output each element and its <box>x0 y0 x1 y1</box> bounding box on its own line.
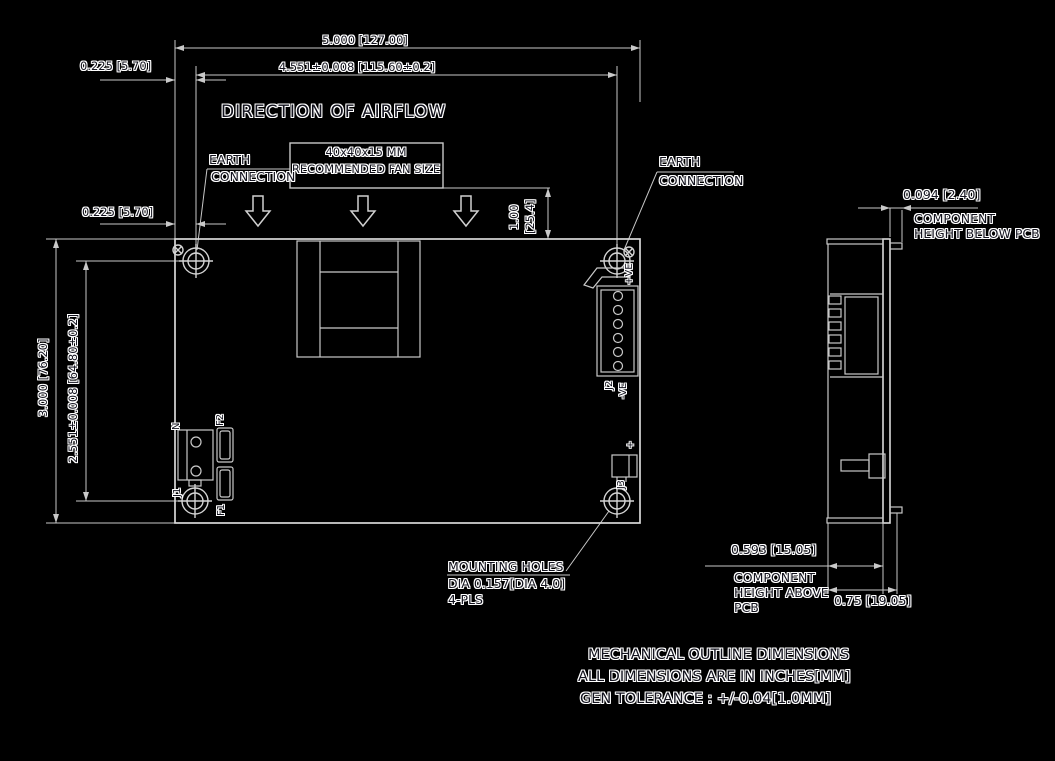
airflow-arrow-icon <box>351 196 375 226</box>
refdes-neg-ve: -VE <box>618 383 630 399</box>
transformer-side-outline <box>845 297 878 374</box>
side-view <box>827 239 902 523</box>
dim-overall-width: 5.000 [127.00] <box>322 34 408 47</box>
refdes-pos-ve: +VE <box>624 263 636 285</box>
dim-fan-height-in: 1.00 <box>508 204 521 230</box>
airflow-title: DIRECTION OF AIRFLOW <box>221 103 446 123</box>
pcb-side-outline <box>883 239 890 523</box>
refdes-j3: J3 <box>617 480 628 489</box>
drawing-linework <box>0 0 1055 761</box>
dim-overall-thickness: 0.75 [19.05] <box>834 594 911 608</box>
dim-height-above-pcb: 0.593 [15.05] <box>731 543 816 557</box>
height-above-label-line1: COMPONENT <box>734 571 815 585</box>
component-j3-outline <box>612 455 637 482</box>
mounting-hole-icons <box>173 244 634 518</box>
height-above-label-line3: PCB <box>734 601 759 615</box>
leader-lines <box>197 169 734 575</box>
dimension-arrows <box>53 45 911 593</box>
fan-note-line1: 40x40x15 MM <box>325 146 406 159</box>
mounting-holes-callout-line3: 4-PLS <box>448 593 483 607</box>
refdes-j2: J2 <box>604 381 616 390</box>
ac-input-connector <box>178 430 213 486</box>
transformer-outline <box>297 241 420 357</box>
board-components <box>178 241 638 500</box>
polarity-plus-mark: + <box>626 440 634 452</box>
dim-hole-pitch-width: 4.551±0.008 [115.60±0.2] <box>279 61 435 74</box>
earth-connection-right-line1: EARTH <box>659 155 700 169</box>
dim-overall-height: 3.000 [76.20] <box>37 339 50 417</box>
airflow-arrow-icon <box>246 196 270 226</box>
mechanical-outline-drawing: 5.000 [127.00] 4.551±0.008 [115.60±0.2] … <box>0 0 1055 761</box>
refdes-f1: F1 <box>216 504 228 516</box>
airflow-arrow-icon <box>454 196 478 226</box>
mounting-hole-icon <box>179 244 213 278</box>
mounting-holes-callout-line2: DIA 0.157[DIA 4.0] <box>448 577 565 591</box>
fuse-f2-outline <box>217 428 233 462</box>
pin-below-pcb <box>890 243 902 249</box>
pcb-outline <box>175 239 640 523</box>
height-above-label-line2: HEIGHT ABOVE <box>734 586 829 600</box>
airflow-arrow-icons <box>246 196 478 226</box>
earth-connection-left-line2: CONNECTION <box>211 170 295 184</box>
height-below-label-line2: HEIGHT BELOW PCB <box>914 227 1040 241</box>
dim-height-below-pcb: 0.094 [2.40] <box>903 188 980 202</box>
dim-hole-offset-top: 0.225 [5.70] <box>80 60 151 73</box>
output-connector-j2 <box>597 286 638 376</box>
note-title: MECHANICAL OUTLINE DIMENSIONS <box>588 647 849 664</box>
earth-connection-right-line2: CONNECTION <box>659 174 743 188</box>
fuse-f1-outline <box>217 467 233 500</box>
refdes-f2: F2 <box>215 414 227 426</box>
note-tolerance: GEN TOLERANCE : +/-0.04[1.0MM] <box>580 691 831 708</box>
dim-hole-pitch-height: 2.551±0.008 [64.80±0.2] <box>67 314 80 463</box>
note-units: ALL DIMENSIONS ARE IN INCHES[MM] <box>578 669 851 686</box>
mounting-hole-icon <box>600 484 634 518</box>
dim-hole-offset-left: 0.225 [5.70] <box>82 206 153 219</box>
fan-note-line2: RECOMMENDED FAN SIZE <box>292 163 440 176</box>
pin-below-pcb <box>890 507 902 513</box>
mounting-holes-callout-line1: MOUNTING HOLES <box>448 560 564 574</box>
height-below-label-line1: COMPONENT <box>914 212 995 226</box>
dim-fan-height-mm: [25.4] <box>524 199 537 234</box>
earth-connection-left-line1: EARTH <box>209 153 250 167</box>
refdes-j1: J1 <box>172 488 184 497</box>
refdes-n: N <box>171 423 183 430</box>
